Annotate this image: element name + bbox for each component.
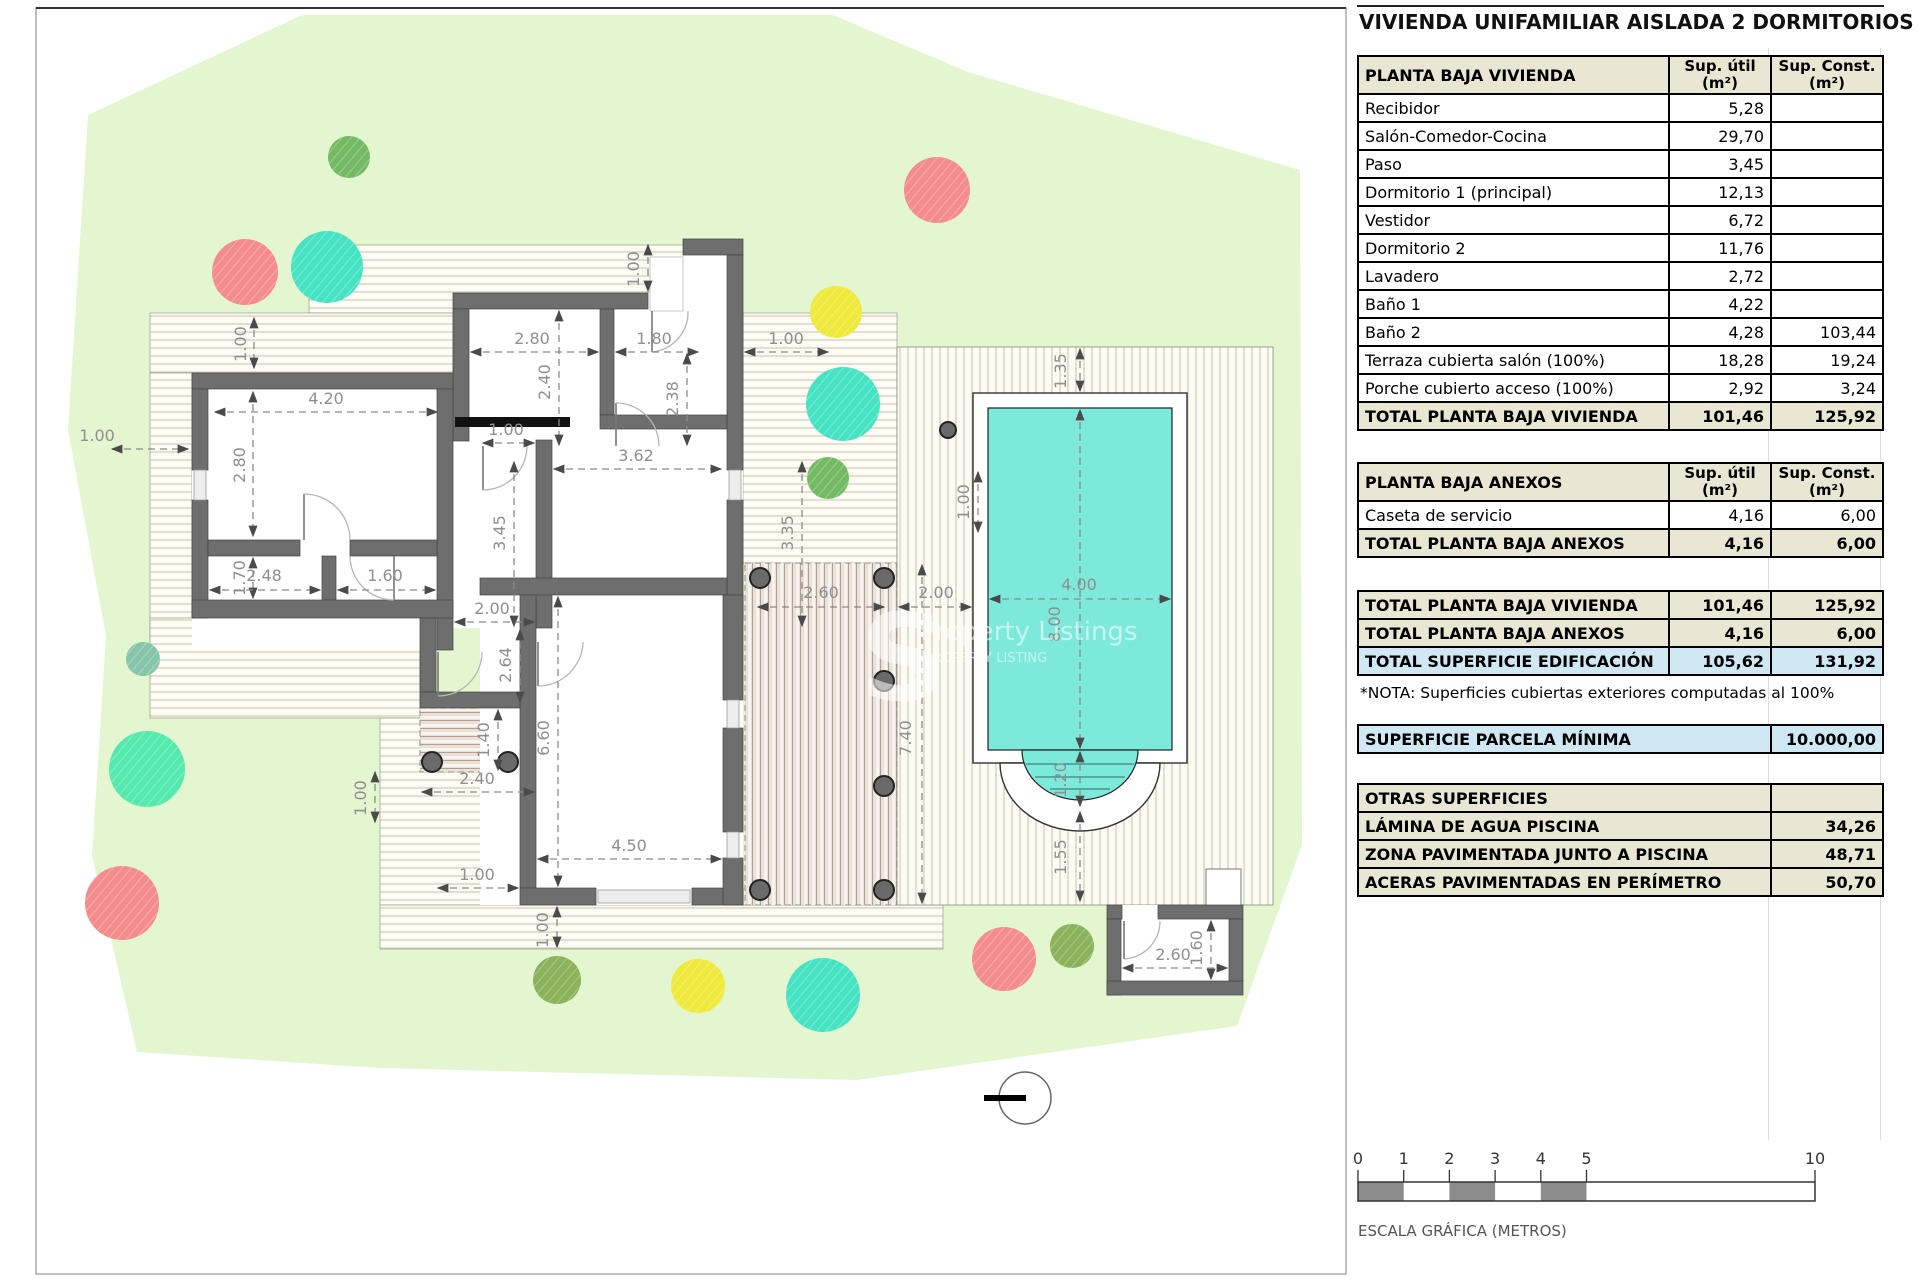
dimension-label: 2.80 — [514, 329, 550, 348]
table-planta-baja-anexos: PLANTA BAJA ANEXOSSup. útil(m²)Sup. Cons… — [1357, 462, 1884, 558]
dimension-label: 2.00 — [474, 599, 510, 618]
surface-label: ZONA PAVIMENTADA JUNTO A PISCINA — [1358, 840, 1771, 868]
table-row: Terraza cubierta salón (100%)18,2819,24 — [1358, 346, 1883, 374]
total-sup-const: 125,92 — [1771, 402, 1883, 430]
table-row: Dormitorio 211,76 — [1358, 234, 1883, 262]
surface-value: 34,26 — [1771, 812, 1883, 840]
room-sup-util: 2,92 — [1669, 374, 1771, 402]
total-sup-util: 4,16 — [1669, 619, 1771, 647]
dimension-label: 3.62 — [618, 446, 654, 465]
dimension-label: 1.60 — [367, 566, 403, 585]
dimension-label: 4.00 — [1061, 575, 1097, 594]
table-row: ZONA PAVIMENTADA JUNTO A PISCINA48,71 — [1358, 840, 1883, 868]
room-sup-const — [1771, 122, 1883, 150]
parcela-label: SUPERFICIE PARCELA MÍNIMA — [1358, 725, 1771, 753]
table-row: Recibidor5,28 — [1358, 94, 1883, 122]
dimension-label: 2.38 — [663, 381, 682, 417]
room-sup-const — [1771, 262, 1883, 290]
dimension-label: 3.45 — [490, 515, 509, 551]
benchmark-symbol — [984, 1072, 1051, 1124]
dimension-label: 4.50 — [611, 836, 647, 855]
surface-label: LÁMINA DE AGUA PISCINA — [1358, 812, 1771, 840]
room-label: Dormitorio 1 (principal) — [1358, 178, 1669, 206]
column-icon — [750, 568, 770, 588]
table-row: Paso3,45 — [1358, 150, 1883, 178]
column-header — [1771, 784, 1883, 812]
sheet-title: VIVIENDA UNIFAMILIAR AISLADA 2 DORMITORI… — [1359, 10, 1882, 34]
room-sup-util: 5,28 — [1669, 94, 1771, 122]
scale-tick-label: 0 — [1353, 1149, 1363, 1168]
scale-tick-label: 2 — [1444, 1149, 1454, 1168]
room-label: Caseta de servicio — [1358, 501, 1669, 529]
dimension-label: 3.35 — [778, 515, 797, 551]
room-sup-util: 4,16 — [1669, 501, 1771, 529]
total-label: TOTAL SUPERFICIE EDIFICACIÓN — [1358, 647, 1669, 675]
column-icon — [498, 752, 518, 772]
scale-tick-label: 4 — [1536, 1149, 1546, 1168]
total-sup-util: 101,46 — [1669, 402, 1771, 430]
dimension-label: 1.20 — [1051, 762, 1070, 798]
table-totales: TOTAL PLANTA BAJA VIVIENDA101,46125,92TO… — [1357, 590, 1884, 676]
dimension-label: 1.00 — [79, 426, 115, 445]
dimension-label: 1.00 — [768, 329, 804, 348]
dimension-label: 1.00 — [488, 420, 524, 439]
table-row: Porche cubierto acceso (100%)2,923,24 — [1358, 374, 1883, 402]
scale-tick-label: 5 — [1581, 1149, 1591, 1168]
scale-bar-label: ESCALA GRÁFICA (METROS) — [1358, 1221, 1567, 1240]
room-sup-util: 12,13 — [1669, 178, 1771, 206]
surface-value: 50,70 — [1771, 868, 1883, 896]
room-sup-util: 2,72 — [1669, 262, 1771, 290]
room-sup-util: 18,28 — [1669, 346, 1771, 374]
room-sup-const — [1771, 94, 1883, 122]
column-icon — [422, 752, 442, 772]
dimension-label: 1.00 — [459, 865, 495, 884]
table-header-row: PLANTA BAJA VIVIENDASup. útil(m²)Sup. Co… — [1358, 56, 1883, 94]
dimension-label: 1.40 — [474, 722, 493, 758]
column-header: Sup. útil(m²) — [1669, 463, 1771, 501]
room-sup-util: 3,45 — [1669, 150, 1771, 178]
scale-tick-label: 3 — [1490, 1149, 1500, 1168]
table-row: Dormitorio 1 (principal)12,13 — [1358, 178, 1883, 206]
room-sup-util: 29,70 — [1669, 122, 1771, 150]
table-row-parcela: SUPERFICIE PARCELA MÍNIMA10.000,00 — [1358, 725, 1883, 753]
total-label: TOTAL PLANTA BAJA ANEXOS — [1358, 619, 1669, 647]
nota-text: *NOTA: Superficies cubiertas exteriores … — [1360, 684, 1834, 702]
room-label: Salón-Comedor-Cocina — [1358, 122, 1669, 150]
room-sup-const — [1771, 150, 1883, 178]
room-sup-util: 11,76 — [1669, 234, 1771, 262]
dimension-label: 1.00 — [624, 251, 643, 287]
total-sup-const: 6,00 — [1771, 529, 1883, 557]
room-label: Baño 2 — [1358, 318, 1669, 346]
scale-tick-label: 1 — [1399, 1149, 1409, 1168]
dimension-label: 1.55 — [1051, 839, 1070, 875]
graphic-scale-bar: 01234510 — [1353, 1149, 1825, 1201]
room-sup-const — [1771, 178, 1883, 206]
column-header: Sup. Const.(m²) — [1771, 56, 1883, 94]
table-row: ACERAS PAVIMENTADAS EN PERÍMETRO50,70 — [1358, 868, 1883, 896]
table-row: Salón-Comedor-Cocina29,70 — [1358, 122, 1883, 150]
total-label: TOTAL PLANTA BAJA ANEXOS — [1358, 529, 1669, 557]
dimension-label: 2.40 — [535, 364, 554, 400]
room-label: Lavadero — [1358, 262, 1669, 290]
parcela-value: 10.000,00 — [1771, 725, 1883, 753]
dimension-label: 4.20 — [308, 389, 344, 408]
table-otras-superficies: OTRAS SUPERFICIESLÁMINA DE AGUA PISCINA3… — [1357, 783, 1884, 897]
svg-text:Property Listings: Property Listings — [920, 617, 1137, 647]
room-label: Porche cubierto acceso (100%) — [1358, 374, 1669, 402]
table-total-row: TOTAL PLANTA BAJA ANEXOS4,166,00 — [1358, 529, 1883, 557]
dimension-label: 1.00 — [231, 326, 250, 362]
plan-sheet: 1.004.202.801.001.702.481.602.801.801.00… — [0, 0, 1920, 1280]
room-label: Dormitorio 2 — [1358, 234, 1669, 262]
total-label: TOTAL PLANTA BAJA VIVIENDA — [1358, 591, 1669, 619]
dimension-label: 2.48 — [246, 566, 282, 585]
total-sup-const: 131,92 — [1771, 647, 1883, 675]
table-total-row: TOTAL SUPERFICIE EDIFICACIÓN105,62131,92 — [1358, 647, 1883, 675]
room-sup-util: 4,22 — [1669, 290, 1771, 318]
table-total-row: TOTAL PLANTA BAJA VIVIENDA101,46125,92 — [1358, 402, 1883, 430]
dimension-label: 2.60 — [1155, 945, 1191, 964]
room-label: Baño 1 — [1358, 290, 1669, 318]
room-sup-util: 6,72 — [1669, 206, 1771, 234]
table-planta-baja-vivienda: PLANTA BAJA VIVIENDASup. útil(m²)Sup. Co… — [1357, 55, 1884, 431]
table-total-row: TOTAL PLANTA BAJA ANEXOS4,166,00 — [1358, 619, 1883, 647]
surface-value: 48,71 — [1771, 840, 1883, 868]
table-total-row: TOTAL PLANTA BAJA VIVIENDA101,46125,92 — [1358, 591, 1883, 619]
column-icon — [874, 568, 894, 588]
dimension-label: 1.80 — [636, 329, 672, 348]
table-row: Baño 24,28103,44 — [1358, 318, 1883, 346]
column-header: Sup. útil(m²) — [1669, 56, 1771, 94]
room-label: Recibidor — [1358, 94, 1669, 122]
column-header: PLANTA BAJA VIVIENDA — [1358, 56, 1669, 94]
room-sup-const: 6,00 — [1771, 501, 1883, 529]
dimension-label: 1.00 — [351, 780, 370, 816]
scale-tick-label: 10 — [1805, 1149, 1825, 1168]
total-sup-util: 101,46 — [1669, 591, 1771, 619]
room-sup-const: 19,24 — [1771, 346, 1883, 374]
column-icon — [874, 880, 894, 900]
column-icon — [874, 776, 894, 796]
total-sup-const: 6,00 — [1771, 619, 1883, 647]
table-row: LÁMINA DE AGUA PISCINA34,26 — [1358, 812, 1883, 840]
dimension-label: 2.60 — [803, 583, 839, 602]
dimension-label: 1.35 — [1051, 353, 1070, 389]
dimension-label: 2.80 — [230, 447, 249, 483]
total-sup-const: 125,92 — [1771, 591, 1883, 619]
table-superficie-parcela: SUPERFICIE PARCELA MÍNIMA10.000,00 — [1357, 724, 1884, 754]
room-sup-const — [1771, 206, 1883, 234]
room-sup-const — [1771, 234, 1883, 262]
room-sup-util: 4,28 — [1669, 318, 1771, 346]
column-icon — [940, 422, 956, 438]
dimension-label: 6.60 — [534, 720, 553, 756]
room-label: Paso — [1358, 150, 1669, 178]
total-label: TOTAL PLANTA BAJA VIVIENDA — [1358, 402, 1669, 430]
total-sup-util: 4,16 — [1669, 529, 1771, 557]
column-header: Sup. Const.(m²) — [1771, 463, 1883, 501]
table-row: Lavadero2,72 — [1358, 262, 1883, 290]
column-icon — [750, 880, 770, 900]
table-header-row: OTRAS SUPERFICIES — [1358, 784, 1883, 812]
dimension-label: 2.40 — [459, 769, 495, 788]
room-sup-const: 103,44 — [1771, 318, 1883, 346]
total-sup-util: 105,62 — [1669, 647, 1771, 675]
room-label: Vestidor — [1358, 206, 1669, 234]
dimension-label: 1.00 — [954, 484, 973, 520]
column-header: OTRAS SUPERFICIES — [1358, 784, 1771, 812]
table-row: Baño 14,22 — [1358, 290, 1883, 318]
table-row: Vestidor6,72 — [1358, 206, 1883, 234]
dimension-label: 1.60 — [1187, 930, 1206, 966]
column-header: PLANTA BAJA ANEXOS — [1358, 463, 1669, 501]
dimension-label: 2.64 — [496, 647, 515, 683]
dimension-label: 1.00 — [533, 912, 552, 948]
room-sup-const: 3,24 — [1771, 374, 1883, 402]
table-header-row: PLANTA BAJA ANEXOSSup. útil(m²)Sup. Cons… — [1358, 463, 1883, 501]
surface-label: ACERAS PAVIMENTADAS EN PERÍMETRO — [1358, 868, 1771, 896]
svg-text:PROPERTY LISTING: PROPERTY LISTING — [925, 651, 1047, 666]
room-sup-const — [1771, 290, 1883, 318]
room-label: Terraza cubierta salón (100%) — [1358, 346, 1669, 374]
table-row: Caseta de servicio4,166,00 — [1358, 501, 1883, 529]
